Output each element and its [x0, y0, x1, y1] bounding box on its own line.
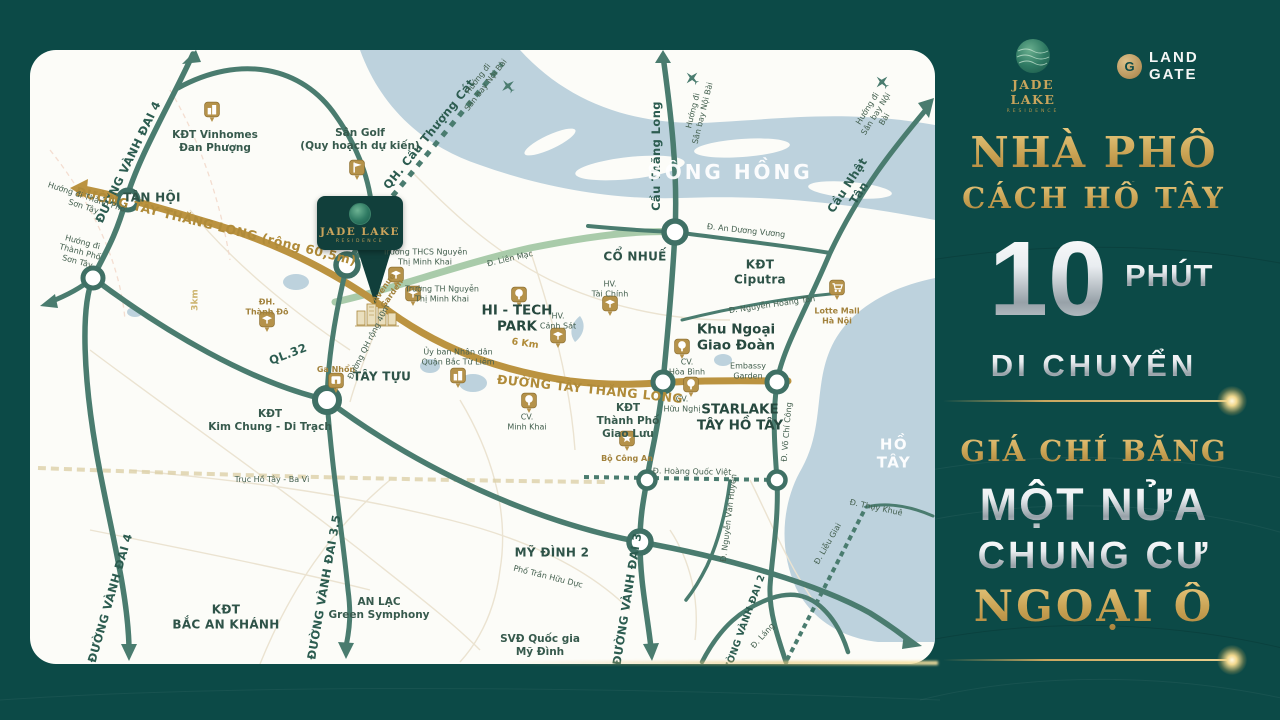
headline-number-10: 10 — [973, 226, 1123, 332]
divider-glow-dot — [1217, 645, 1247, 675]
sub-ngoai-o: NGOẠI Ô — [935, 582, 1253, 632]
dh-thanh-do-icon — [259, 312, 275, 333]
land-gate-wordmark: LAND GATE — [1149, 50, 1199, 83]
headline-cach-ho-tay: CÁCH HỒ TÂY — [935, 181, 1253, 215]
avenue-garden-buildings-icon — [355, 298, 399, 328]
jade-lake-logo-icon — [349, 203, 371, 225]
jade-lake-map-pin: JADE LAKE RESIDENCE — [317, 196, 403, 250]
map-roads-svg — [30, 50, 935, 664]
land-gate-line2: GATE — [1149, 67, 1199, 84]
cv-huu-nghi-tree-icon — [683, 377, 699, 398]
pin-subtitle: RESIDENCE — [336, 239, 384, 244]
bo-cong-an-badge-icon — [619, 431, 635, 452]
bottom-gold-glow — [500, 661, 938, 665]
thcs-school-icon — [388, 267, 404, 288]
headline-di-chuyen: DI CHUYỂN — [935, 348, 1253, 384]
cv-hoa-binh-tree-icon — [674, 339, 690, 360]
land-gate-logo-icon: G — [1117, 54, 1142, 79]
th-school-icon — [405, 286, 421, 307]
land-gate-line1: LAND — [1149, 50, 1199, 67]
hv-canh-sat-icon — [550, 328, 566, 349]
divider-glow-dot — [1217, 386, 1247, 416]
lotte-mall-cart-icon — [829, 280, 845, 301]
ubnd-building-icon — [450, 368, 466, 389]
golf-flag-icon — [349, 160, 365, 181]
vinhomes-building-icon — [204, 102, 220, 123]
sub-chung-cu: CHUNG CƯ — [935, 535, 1253, 578]
hi-tech-park-tree-icon — [511, 287, 527, 308]
hv-tai-chinh-icon — [602, 296, 618, 317]
pin-title: JADE LAKE — [320, 226, 400, 238]
gold-divider-top — [943, 400, 1235, 402]
gold-divider-bottom — [943, 659, 1235, 661]
land-gate-brand: G LAND GATE — [1117, 50, 1199, 83]
headline-nha-pho: NHÀ PHỐ — [935, 128, 1253, 177]
jade-lake-logo-icon — [1015, 38, 1051, 74]
jade-lake-subtitle: RESIDENCE — [995, 109, 1071, 114]
jade-lake-wordmark: JADE LAKE — [995, 77, 1071, 107]
sub-mot-nua: MỘT NỬA — [935, 479, 1253, 531]
poster-root: { "panel": { "jade_lake": {"title": "JAD… — [0, 0, 1280, 720]
location-map: JADE LAKE RESIDENCE ĐƯỜNG VÀNH ĐAI 4ĐƯỜN… — [30, 50, 935, 664]
jade-lake-brand: JADE LAKE RESIDENCE — [995, 38, 1071, 114]
cv-minh-khai-tree-icon — [521, 393, 537, 414]
ga-nhon-station-icon — [328, 373, 344, 394]
headline-unit-phut: PHÚT — [1125, 258, 1235, 294]
sub-gia-chi-bang: GIÁ CHỈ BẰNG — [935, 434, 1253, 468]
marketing-panel: JADE LAKE RESIDENCE G LAND GATE NHÀ PHỐ … — [935, 0, 1280, 720]
